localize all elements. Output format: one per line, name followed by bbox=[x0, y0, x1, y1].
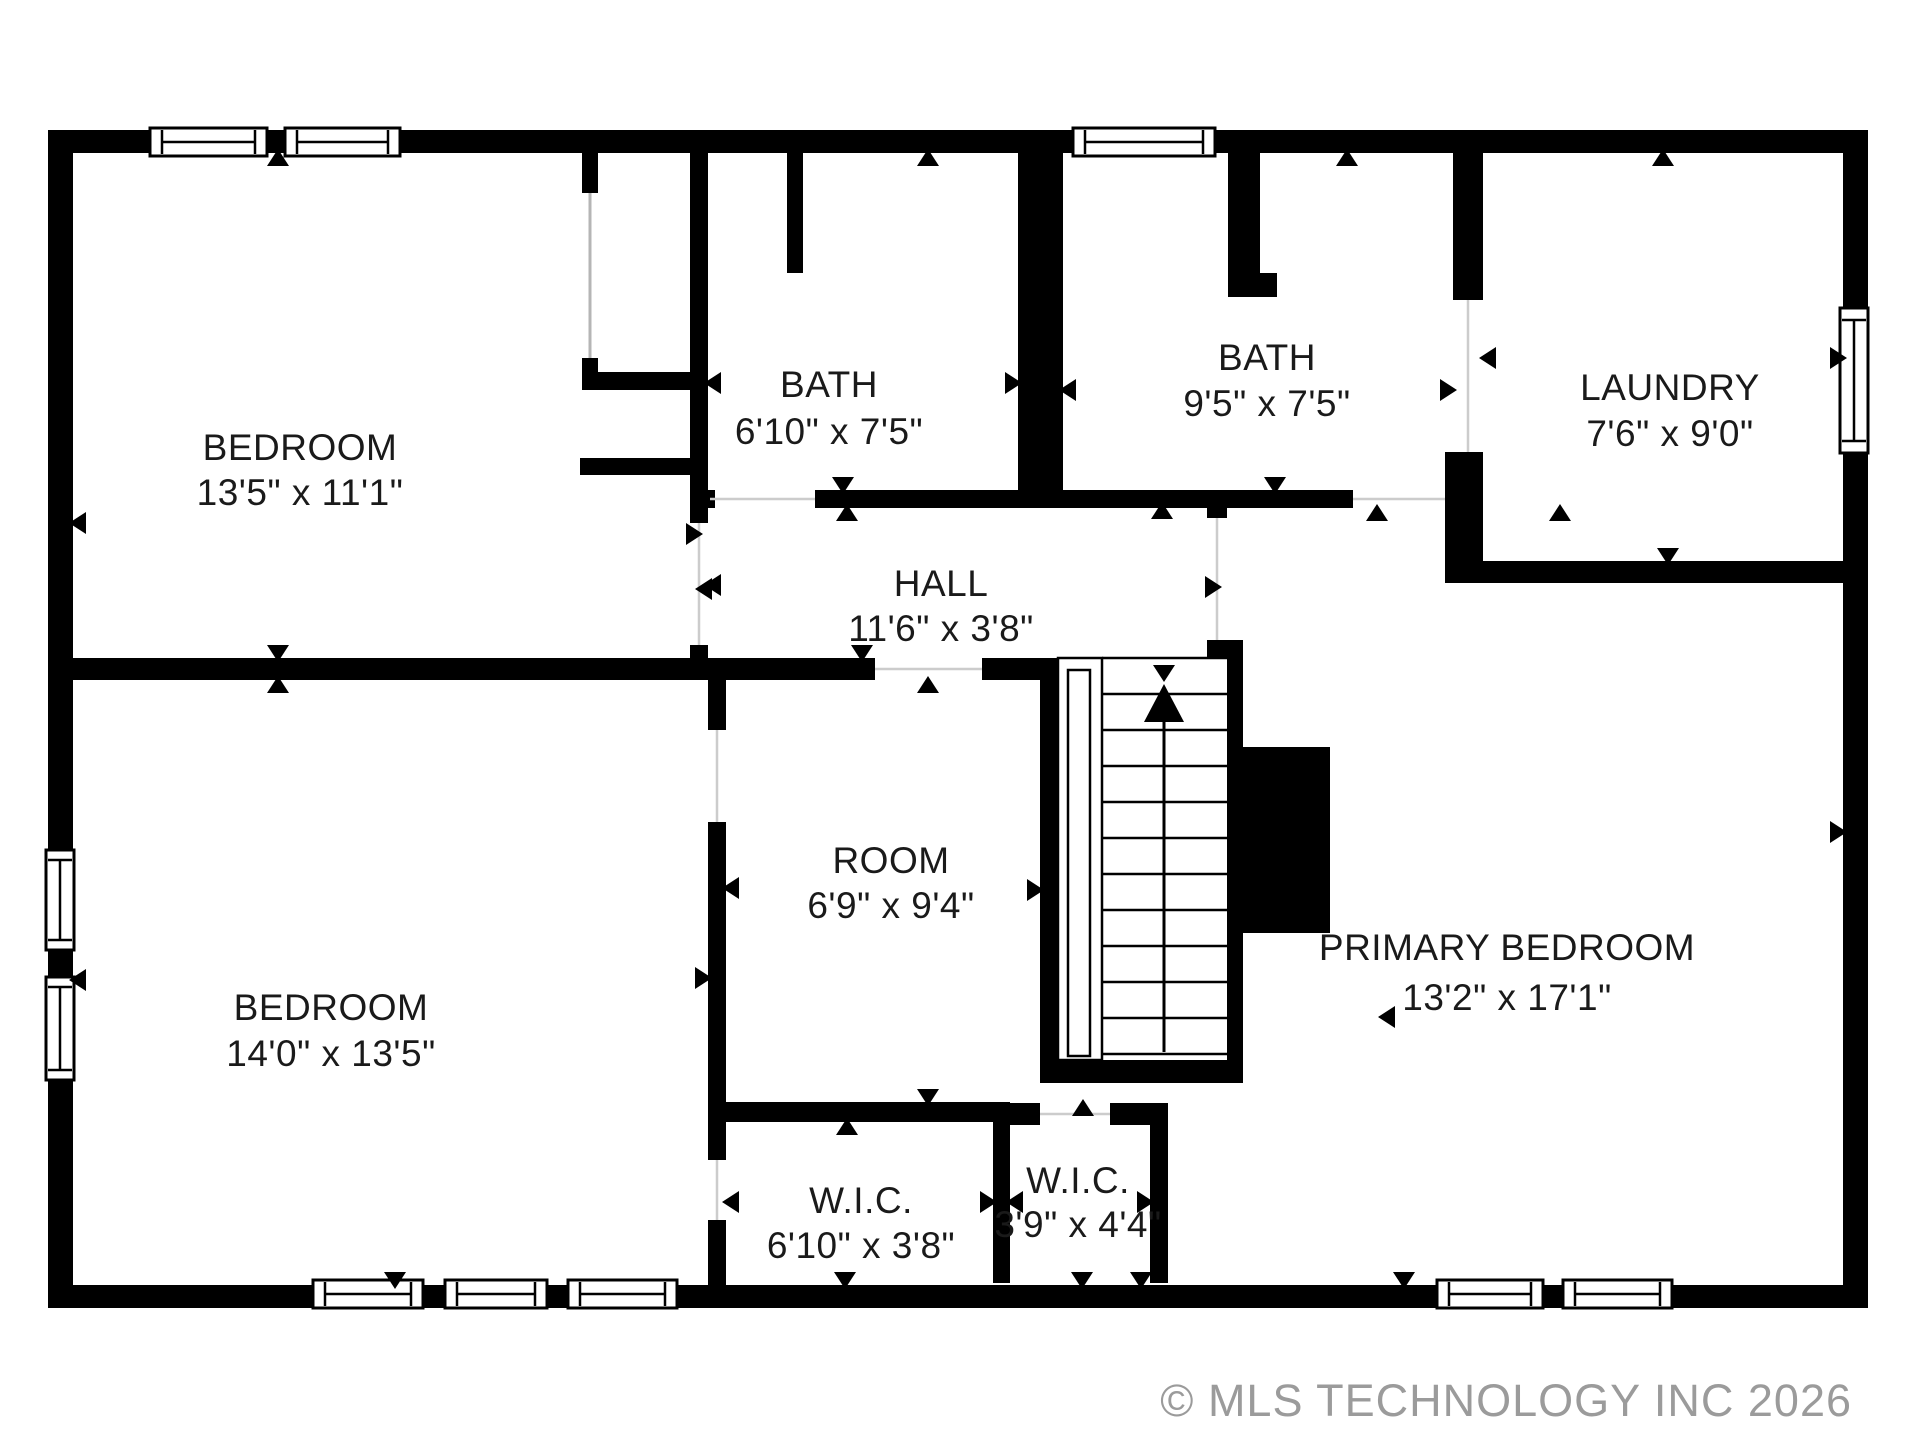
wall-segment bbox=[1040, 658, 1058, 1083]
window-icon bbox=[46, 850, 74, 950]
wall-segment bbox=[708, 1102, 1010, 1122]
window-icon bbox=[285, 128, 400, 156]
wall-segment bbox=[1010, 1103, 1040, 1125]
wall-segment bbox=[1453, 130, 1483, 300]
wall-segment bbox=[708, 680, 726, 730]
window-icon bbox=[1073, 128, 1215, 156]
staircase bbox=[1058, 658, 1227, 1060]
dimension-arrow-icon bbox=[1440, 379, 1457, 401]
dimension-arrow-icon bbox=[1378, 1006, 1395, 1028]
room-label-room: ROOM bbox=[832, 840, 949, 881]
wall-segment bbox=[1445, 561, 1868, 583]
dimension-arrow-icon bbox=[1205, 576, 1222, 598]
walls bbox=[48, 130, 1868, 1308]
wall-segment bbox=[690, 153, 708, 523]
room-dims-hall: 11'6" x 3'8" bbox=[848, 608, 1034, 649]
dimension-arrow-icon bbox=[686, 523, 703, 545]
wall-segment bbox=[993, 1102, 1010, 1283]
dimension-arrow-icon bbox=[1072, 1099, 1094, 1116]
room-dims-wic1: 6'10" x 3'8" bbox=[767, 1225, 955, 1266]
room-dims-bath2: 9'5" x 7'5" bbox=[1183, 383, 1350, 424]
window-icon bbox=[313, 1280, 423, 1308]
watermark: © MLS TECHNOLOGY INC 2026 bbox=[1160, 1375, 1852, 1426]
wall-segment bbox=[787, 130, 803, 273]
window-icon bbox=[445, 1280, 547, 1308]
window-icon bbox=[46, 977, 74, 1080]
room-label-primary: PRIMARY BEDROOM bbox=[1319, 927, 1695, 968]
room-label-wic2: W.I.C. bbox=[1026, 1160, 1130, 1201]
room-dims-bath1: 6'10" x 7'5" bbox=[735, 411, 923, 452]
room-dims-wic2: 3'9" x 4'4" bbox=[994, 1204, 1161, 1245]
chimney-block bbox=[1243, 747, 1330, 933]
room-label-wic1: W.I.C. bbox=[809, 1180, 913, 1221]
wall-segment bbox=[1018, 130, 1063, 508]
dimension-arrow-icon bbox=[1366, 504, 1388, 521]
room-dims-primary: 13'2" x 17'1" bbox=[1402, 977, 1611, 1018]
windows bbox=[46, 128, 1868, 1308]
wall-segment bbox=[580, 458, 690, 475]
wall-segment bbox=[48, 658, 875, 680]
dimension-arrow-icon bbox=[1479, 347, 1496, 369]
room-dims-laundry: 7'6" x 9'0" bbox=[1586, 413, 1753, 454]
stair-up-arrow-icon bbox=[1144, 684, 1184, 722]
wall-segment bbox=[815, 490, 1353, 508]
room-label-bath1: BATH bbox=[780, 364, 878, 405]
dimension-arrow-icon bbox=[722, 1191, 739, 1213]
window-icon bbox=[1840, 308, 1868, 453]
room-dims-bedroom1: 13'5" x 11'1" bbox=[197, 472, 404, 513]
wall-segment bbox=[708, 1220, 726, 1285]
floor-plan: BEDROOM 13'5" x 11'1" BATH 6'10" x 7'5" … bbox=[0, 0, 1920, 1440]
wall-segment bbox=[1150, 1103, 1168, 1283]
wall-segment bbox=[708, 822, 726, 1102]
window-icon bbox=[568, 1280, 677, 1308]
room-label-bedroom2: BEDROOM bbox=[234, 987, 429, 1028]
room-label-hall: HALL bbox=[894, 563, 989, 604]
room-labels: BEDROOM 13'5" x 11'1" BATH 6'10" x 7'5" … bbox=[197, 337, 1760, 1266]
window-icon bbox=[1563, 1280, 1672, 1308]
floor-plan-page: BEDROOM 13'5" x 11'1" BATH 6'10" x 7'5" … bbox=[0, 0, 1920, 1440]
window-icon bbox=[1437, 1280, 1543, 1308]
dimension-arrow-icon bbox=[917, 676, 939, 693]
room-dims-room: 6'9" x 9'4" bbox=[807, 885, 974, 926]
wall-exterior-left bbox=[48, 130, 73, 1308]
room-label-bedroom1: BEDROOM bbox=[203, 427, 398, 468]
wall-segment bbox=[1207, 508, 1227, 518]
wall-segment bbox=[582, 372, 690, 390]
dimension-arrow-icon bbox=[1549, 504, 1571, 521]
stair-down-arrow-icon bbox=[1153, 665, 1175, 682]
window-icon bbox=[150, 128, 267, 156]
room-label-bath2: BATH bbox=[1218, 337, 1316, 378]
wall-segment bbox=[1228, 130, 1260, 297]
wall-segment bbox=[1228, 273, 1277, 297]
stair-handrail-inner bbox=[1068, 670, 1090, 1056]
room-label-laundry: LAUNDRY bbox=[1580, 367, 1760, 408]
wall-segment bbox=[582, 153, 598, 193]
dimension-arrow-icon bbox=[695, 578, 712, 600]
room-dims-bedroom2: 14'0" x 13'5" bbox=[226, 1033, 435, 1074]
wall-segment bbox=[1227, 640, 1243, 1083]
wall-segment bbox=[1040, 1060, 1243, 1083]
